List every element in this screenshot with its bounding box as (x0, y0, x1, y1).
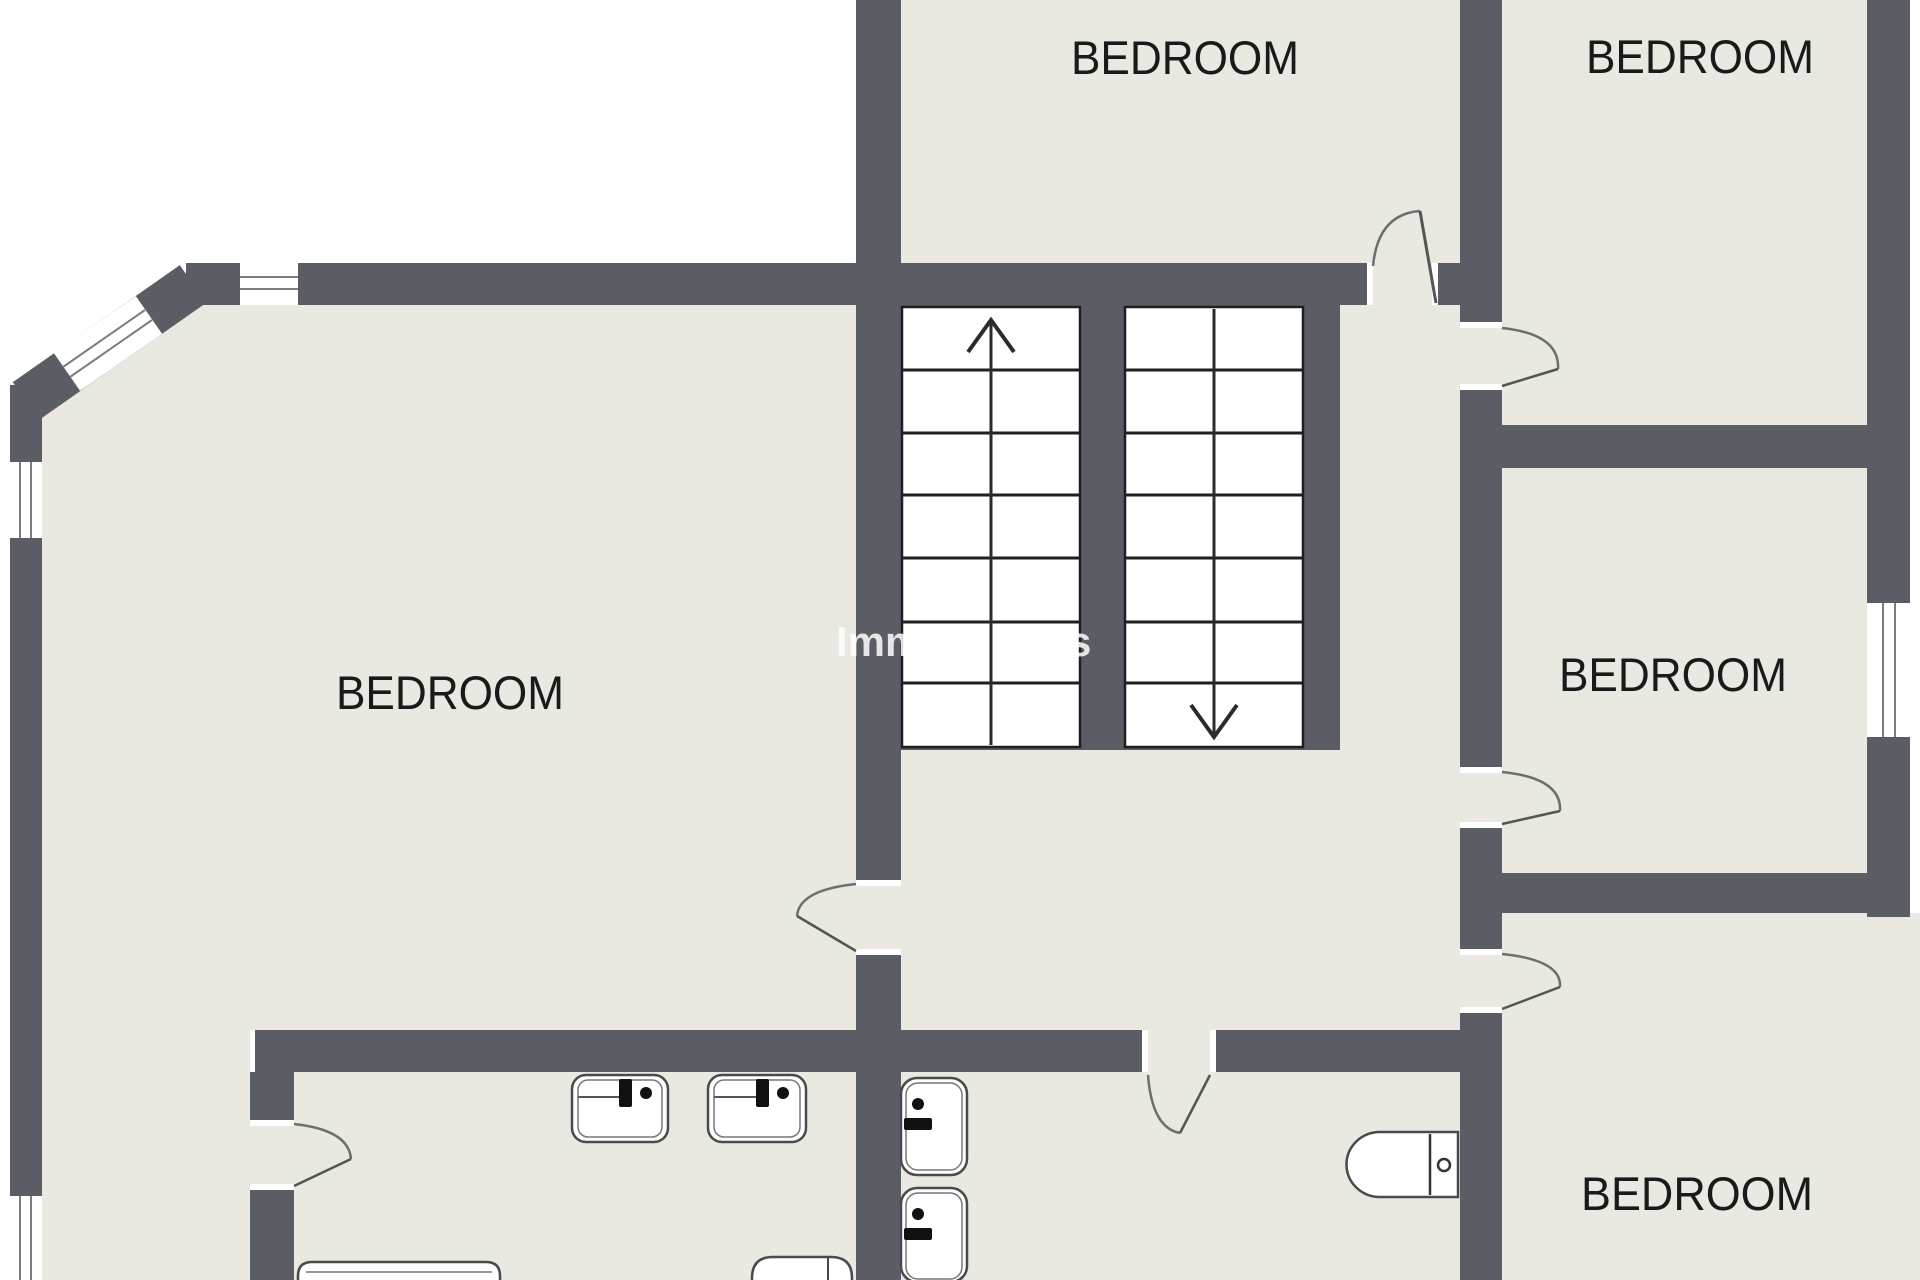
flush-dot-icon (912, 1208, 924, 1220)
window-top (240, 263, 298, 305)
door-jamb (1460, 1007, 1502, 1013)
door-jamb (856, 880, 901, 886)
door-gap-right-middle (1460, 773, 1502, 822)
wall-right-rooms-top (1502, 425, 1867, 468)
door-gap-bottom-left (250, 1126, 294, 1184)
door-gap-left-bedroom (856, 886, 901, 949)
faucet-dot-icon (640, 1087, 652, 1099)
flush-dot-icon (912, 1098, 924, 1110)
wall-top-door-segment (1438, 263, 1460, 305)
watermark-fragment-3: s (1068, 618, 1091, 665)
door-jamb (856, 949, 901, 955)
door-jamb (1367, 263, 1373, 305)
door-jamb (1460, 949, 1502, 955)
room-label-bedroom-top-center: BEDROOM (1071, 31, 1299, 84)
faucet-icon (619, 1079, 632, 1107)
faucet-dot-icon (777, 1087, 789, 1099)
flush-button-icon (1438, 1159, 1450, 1171)
window-left-upper (10, 462, 42, 538)
wall-right-rooms-mid (1502, 873, 1867, 913)
flush-bar-icon (904, 1228, 932, 1240)
window-right (1867, 603, 1910, 737)
faucet-icon (756, 1079, 769, 1107)
room-label-bedroom-top-right: BEDROOM (1586, 30, 1814, 83)
room-label-bedroom-bottom-right: BEDROOM (1581, 1167, 1813, 1220)
watermark-fragment-2: n (1028, 618, 1054, 665)
wall-exterior-right (1867, 0, 1910, 917)
wall-top (186, 263, 1367, 305)
wall-bathroom-left (250, 1030, 1148, 1072)
door-gap-bottom-right (1460, 955, 1502, 1007)
floor-plan-page: BEDROOMBEDROOMBEDROOMBEDROOMBEDROOMImmon… (0, 0, 1920, 1280)
wall-shared-right (1460, 0, 1502, 1280)
watermark-fragment-1: Immo (836, 618, 948, 665)
door-jamb (250, 1120, 294, 1126)
window-left-lower (10, 1196, 42, 1280)
wall-bathroom-right (1210, 1030, 1460, 1072)
door-gap-top-center (1373, 263, 1432, 305)
fixture-bottom-center (752, 1257, 852, 1280)
bathtub (298, 1262, 500, 1280)
room-label-bedroom-right-middle: BEDROOM (1559, 648, 1787, 701)
door-jamb (250, 1184, 294, 1190)
floor-plan-svg: BEDROOMBEDROOMBEDROOMBEDROOMBEDROOMImmon… (0, 0, 1920, 1280)
door-jamb (1460, 384, 1502, 390)
door-jamb (1460, 322, 1502, 328)
door-gap-top-right (1460, 328, 1502, 384)
wall-end-cap (250, 1030, 255, 1072)
door-jamb (1210, 1030, 1216, 1072)
bottom-right-bedroom-floor (1458, 913, 1920, 1280)
door-jamb (1460, 822, 1502, 828)
door-jamb (1142, 1030, 1148, 1072)
door-jamb (1460, 767, 1502, 773)
room-label-bedroom-left: BEDROOM (336, 666, 564, 719)
flush-bar-icon (904, 1118, 932, 1130)
